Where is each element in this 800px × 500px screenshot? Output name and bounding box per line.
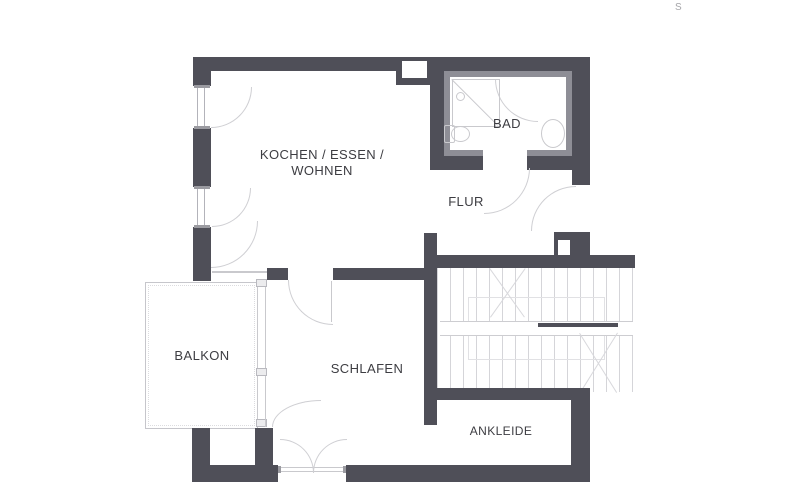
exterior-wall-right-upper [572,57,590,185]
exterior-wall-left-lower [193,227,211,281]
room-label-dressing: ANKLEIDE [470,423,533,439]
entrance-door-swing-arc [531,186,576,231]
facade-mullion [256,279,267,287]
room-label-kitchen-living-line2: WOHNEN [260,163,384,179]
french-door-swing-arc [211,221,258,268]
shaft-void-top [402,61,427,78]
window-jamb [194,85,210,88]
room-label-kitchen-living-line1: KOCHEN / ESSEN / [260,147,384,163]
glass-facade-line [257,282,258,427]
window-jamb [194,126,210,129]
shower-head-icon [456,92,465,101]
wall-corner-top-left [193,57,211,86]
window-frame-line [197,187,198,227]
shaft-void-right [558,240,570,256]
exterior-wall-bottom [346,465,590,482]
staircase-top-wall [424,255,635,268]
window-left-upper [193,86,211,128]
window-frame-line [197,86,198,128]
bathroom-door-swing-arc [484,168,530,214]
floor-plan: KOCHEN / ESSEN / WOHNEN FLUR BAD SCHLAFE… [0,0,800,500]
window-frame-line [204,86,205,128]
toilet-bowl [451,126,470,142]
room-label-hall: FLUR [448,194,484,210]
window-jamb [194,225,210,228]
washbasin [541,119,565,148]
dressing-top-wall [437,388,587,400]
closet-door-swing-arc [272,400,321,427]
ceiling-beam-line [212,271,267,273]
wall-below-balcony-right [255,428,273,472]
window-swing-arc [211,87,252,128]
room-label-balcony: BALKON [174,348,229,364]
room-label-bedroom: SCHLAFEN [331,361,404,377]
balcony-window-swing-arc [280,439,314,473]
bedroom-dividing-wall [333,268,424,280]
room-label-bath: BAD [493,116,521,132]
window-frame-line [204,187,205,227]
room-label-kitchen-living: KOCHEN / ESSEN / WOHNEN [260,147,384,179]
balcony-window-swing-arc [313,439,347,473]
door-leaf [265,400,266,427]
exterior-wall-left-mid [193,128,211,187]
window-jamb [194,186,210,189]
compass-letter-s: S [675,2,682,13]
bedroom-door-swing-arc [288,280,333,325]
hall-divider-wall [424,233,437,425]
window-left-lower [193,187,211,227]
facade-mullion [256,368,267,376]
stair-handrail [538,323,618,327]
bedroom-wall-stub [267,268,288,280]
